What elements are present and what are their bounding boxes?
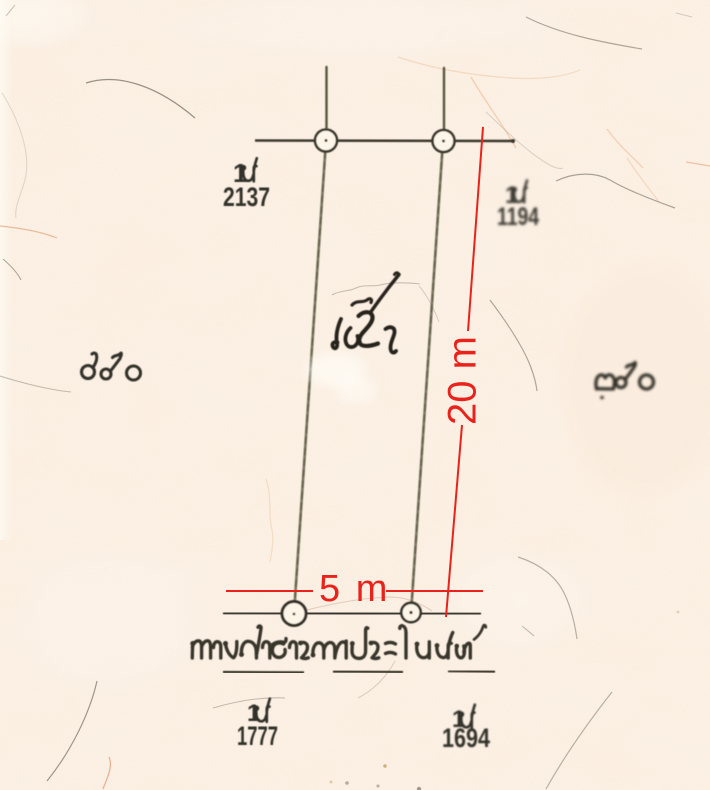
svg-text:1694: 1694 (442, 723, 490, 753)
svg-text:1194: 1194 (497, 203, 539, 231)
svg-text:2137: 2137 (223, 182, 270, 212)
svg-text:20 m: 20 m (441, 336, 485, 425)
svg-text:1777: 1777 (237, 721, 278, 751)
svg-text:5 m: 5 m (319, 568, 390, 610)
